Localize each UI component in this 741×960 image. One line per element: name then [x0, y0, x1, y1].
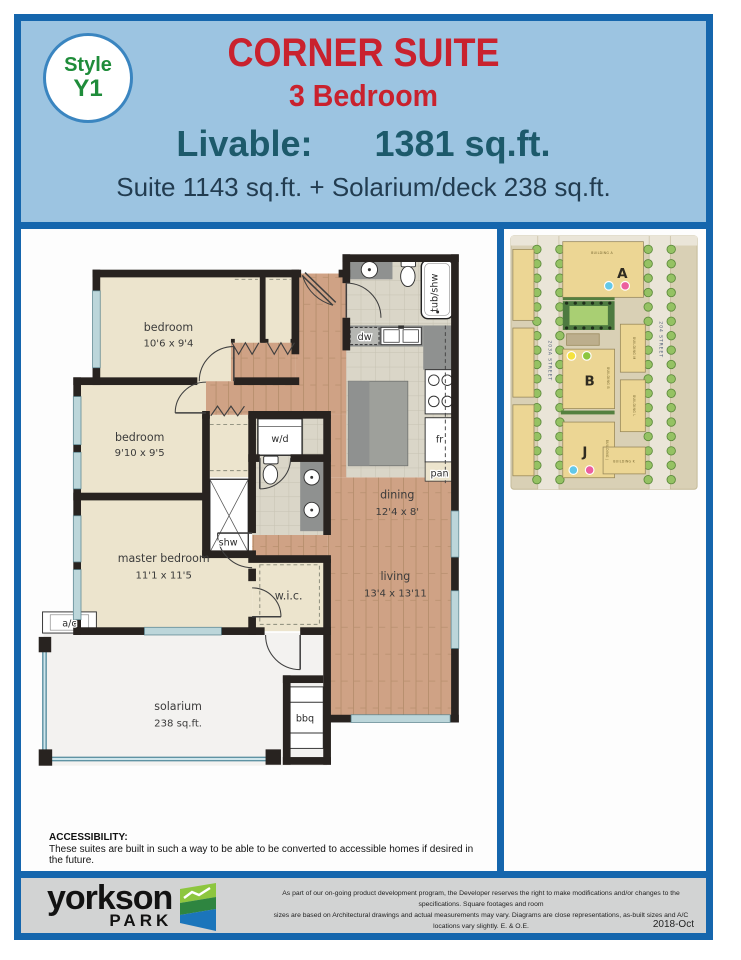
building-b-small-label: BUILDING B [606, 367, 610, 389]
bedroom1-dims: 10'6 x 9'4 [143, 339, 193, 350]
legal-disclaimer: As part of our on-going product developm… [261, 889, 701, 933]
sitemap-drawing: A B J BUILDING A BUILDING B BUILDING J B… [509, 234, 701, 495]
dishwasher-label: dw [358, 332, 372, 343]
building-m-small-label: BUILDING M [632, 337, 636, 360]
brand-name-top: yorkson [47, 882, 172, 914]
bedroom1-label: bedroom [144, 321, 193, 334]
street-left-label: 203A STREET [546, 340, 552, 381]
brand-logo: yorkson PARK [47, 882, 218, 931]
floorplan-drawing: bedroom 10'6 x 9'4 bedroom 9'10 x 9'5 ma… [29, 237, 481, 833]
accessibility-heading: ACCESSIBILITY: [49, 832, 485, 843]
accessibility-text: These suites are built in such a way to … [49, 844, 485, 866]
accessibility-note: ACCESSIBILITY: These suites are built in… [49, 832, 485, 866]
disclaimer-line2: sizes are based on Architectural drawing… [261, 911, 701, 933]
dot-blue-a [605, 281, 614, 290]
sitemap-panel: A B J BUILDING A BUILDING B BUILDING J B… [504, 229, 706, 871]
ac-label: a/c [62, 618, 76, 629]
fridge-label: fr [436, 435, 443, 446]
dining-label: dining [380, 488, 414, 501]
livable-label: Livable: [176, 123, 312, 165]
dot-blue-j [569, 466, 578, 475]
toilet2-tank-icon [264, 456, 278, 464]
page-frame: Style Y1 CORNER SUITE 3 Bedroom Livable:… [14, 14, 713, 940]
bedroom2-dims: 9'10 x 9'5 [115, 448, 165, 459]
suite-breakdown: Suite 1143 sq.ft. + Solarium/deck 238 sq… [21, 172, 706, 203]
living-dims: 13'4 x 13'11 [364, 589, 427, 600]
disclaimer-line1: As part of our on-going product developm… [261, 889, 701, 911]
master-label: master bedroom [118, 552, 210, 565]
building-k-small-label: BUILDING K [613, 459, 635, 463]
solarium-dims: 238 sq.ft. [154, 718, 202, 729]
building-l-small-label: BUILDING L [632, 395, 636, 417]
washer-dryer-label: w/d [271, 434, 288, 445]
dining-dims: 12'4 x 8' [375, 507, 419, 518]
toilet-icon [401, 266, 415, 286]
dot-pink-a [621, 281, 630, 290]
footer: yorkson PARK As part of our on-going pro… [21, 878, 706, 933]
street-right-label: 204 STREET [658, 321, 664, 358]
brand-flag-icon [178, 883, 218, 931]
dot-pink-j [585, 466, 594, 475]
wic-label: w.i.c. [275, 589, 303, 602]
pantry-label: pan [431, 468, 449, 479]
building-b-letter: B [585, 375, 595, 390]
master-dims: 11'1 x 11'5 [135, 570, 191, 581]
building-j-small-label: BUILDING J [605, 440, 609, 461]
toilet2-icon [263, 465, 277, 484]
solarium-label: solarium [154, 700, 202, 713]
bath2-counter [300, 458, 323, 531]
content-row: bedroom 10'6 x 9'4 bedroom 9'10 x 9'5 ma… [21, 222, 706, 878]
dot-green-b [582, 352, 591, 361]
revision-date: 2018-Oct [653, 919, 694, 930]
livable-row: Livable: 1381 sq.ft. [21, 123, 706, 165]
brand-name-bottom: PARK [109, 911, 172, 931]
page-title: CORNER SUITE [55, 21, 672, 76]
bbq-label: bbq [296, 713, 314, 724]
living-label: living [380, 570, 410, 583]
livable-value: 1381 sq.ft. [374, 123, 550, 165]
tub-label: tub/shw [430, 274, 441, 312]
floorplan-panel: bedroom 10'6 x 9'4 bedroom 9'10 x 9'5 ma… [21, 229, 497, 871]
bedroom2-label: bedroom [115, 431, 164, 444]
building-a [563, 242, 644, 298]
dot-yellow-b [567, 352, 576, 361]
building-a-letter: A [617, 267, 628, 282]
header: Style Y1 CORNER SUITE 3 Bedroom Livable:… [21, 21, 706, 222]
building-a-small-label: BUILDING A [591, 251, 613, 255]
shower-label: shw [219, 538, 238, 549]
building-j-letter: J [581, 446, 587, 461]
panel-divider [497, 229, 504, 871]
page-subtitle: 3 Bedroom [48, 78, 678, 114]
